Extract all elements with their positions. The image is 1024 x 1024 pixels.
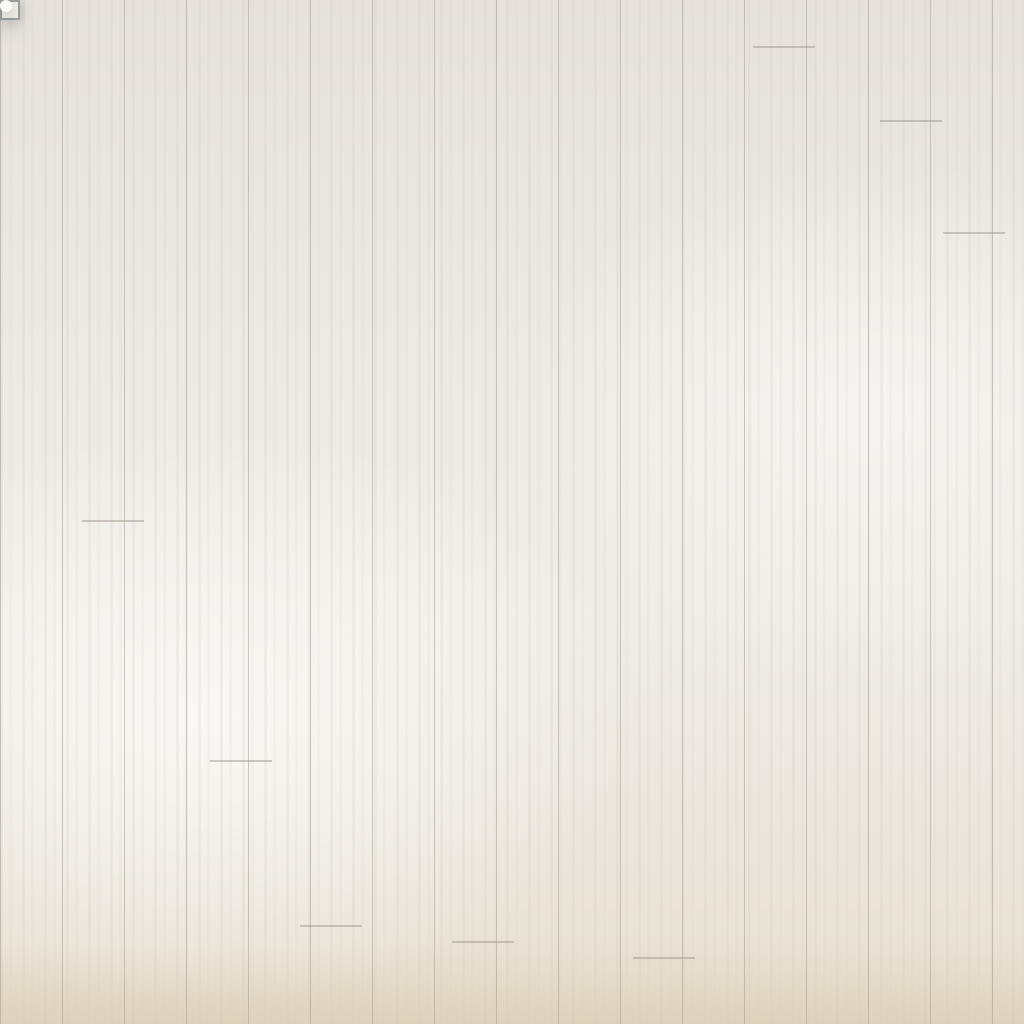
living-room-scene bbox=[0, 0, 1024, 1024]
plank-joint bbox=[300, 925, 362, 927]
plank-joint bbox=[880, 120, 942, 122]
plank-joint bbox=[452, 941, 514, 943]
rug-detail-texture bbox=[4, 4, 8, 8]
wood-floor bbox=[0, 0, 1024, 1024]
plank-joint bbox=[753, 46, 815, 48]
plank-joint bbox=[82, 520, 144, 522]
rug-detail-magnifier bbox=[0, 0, 12, 12]
plank-joint bbox=[210, 760, 272, 762]
plank-joint bbox=[633, 957, 695, 959]
plank-joint bbox=[943, 232, 1005, 234]
